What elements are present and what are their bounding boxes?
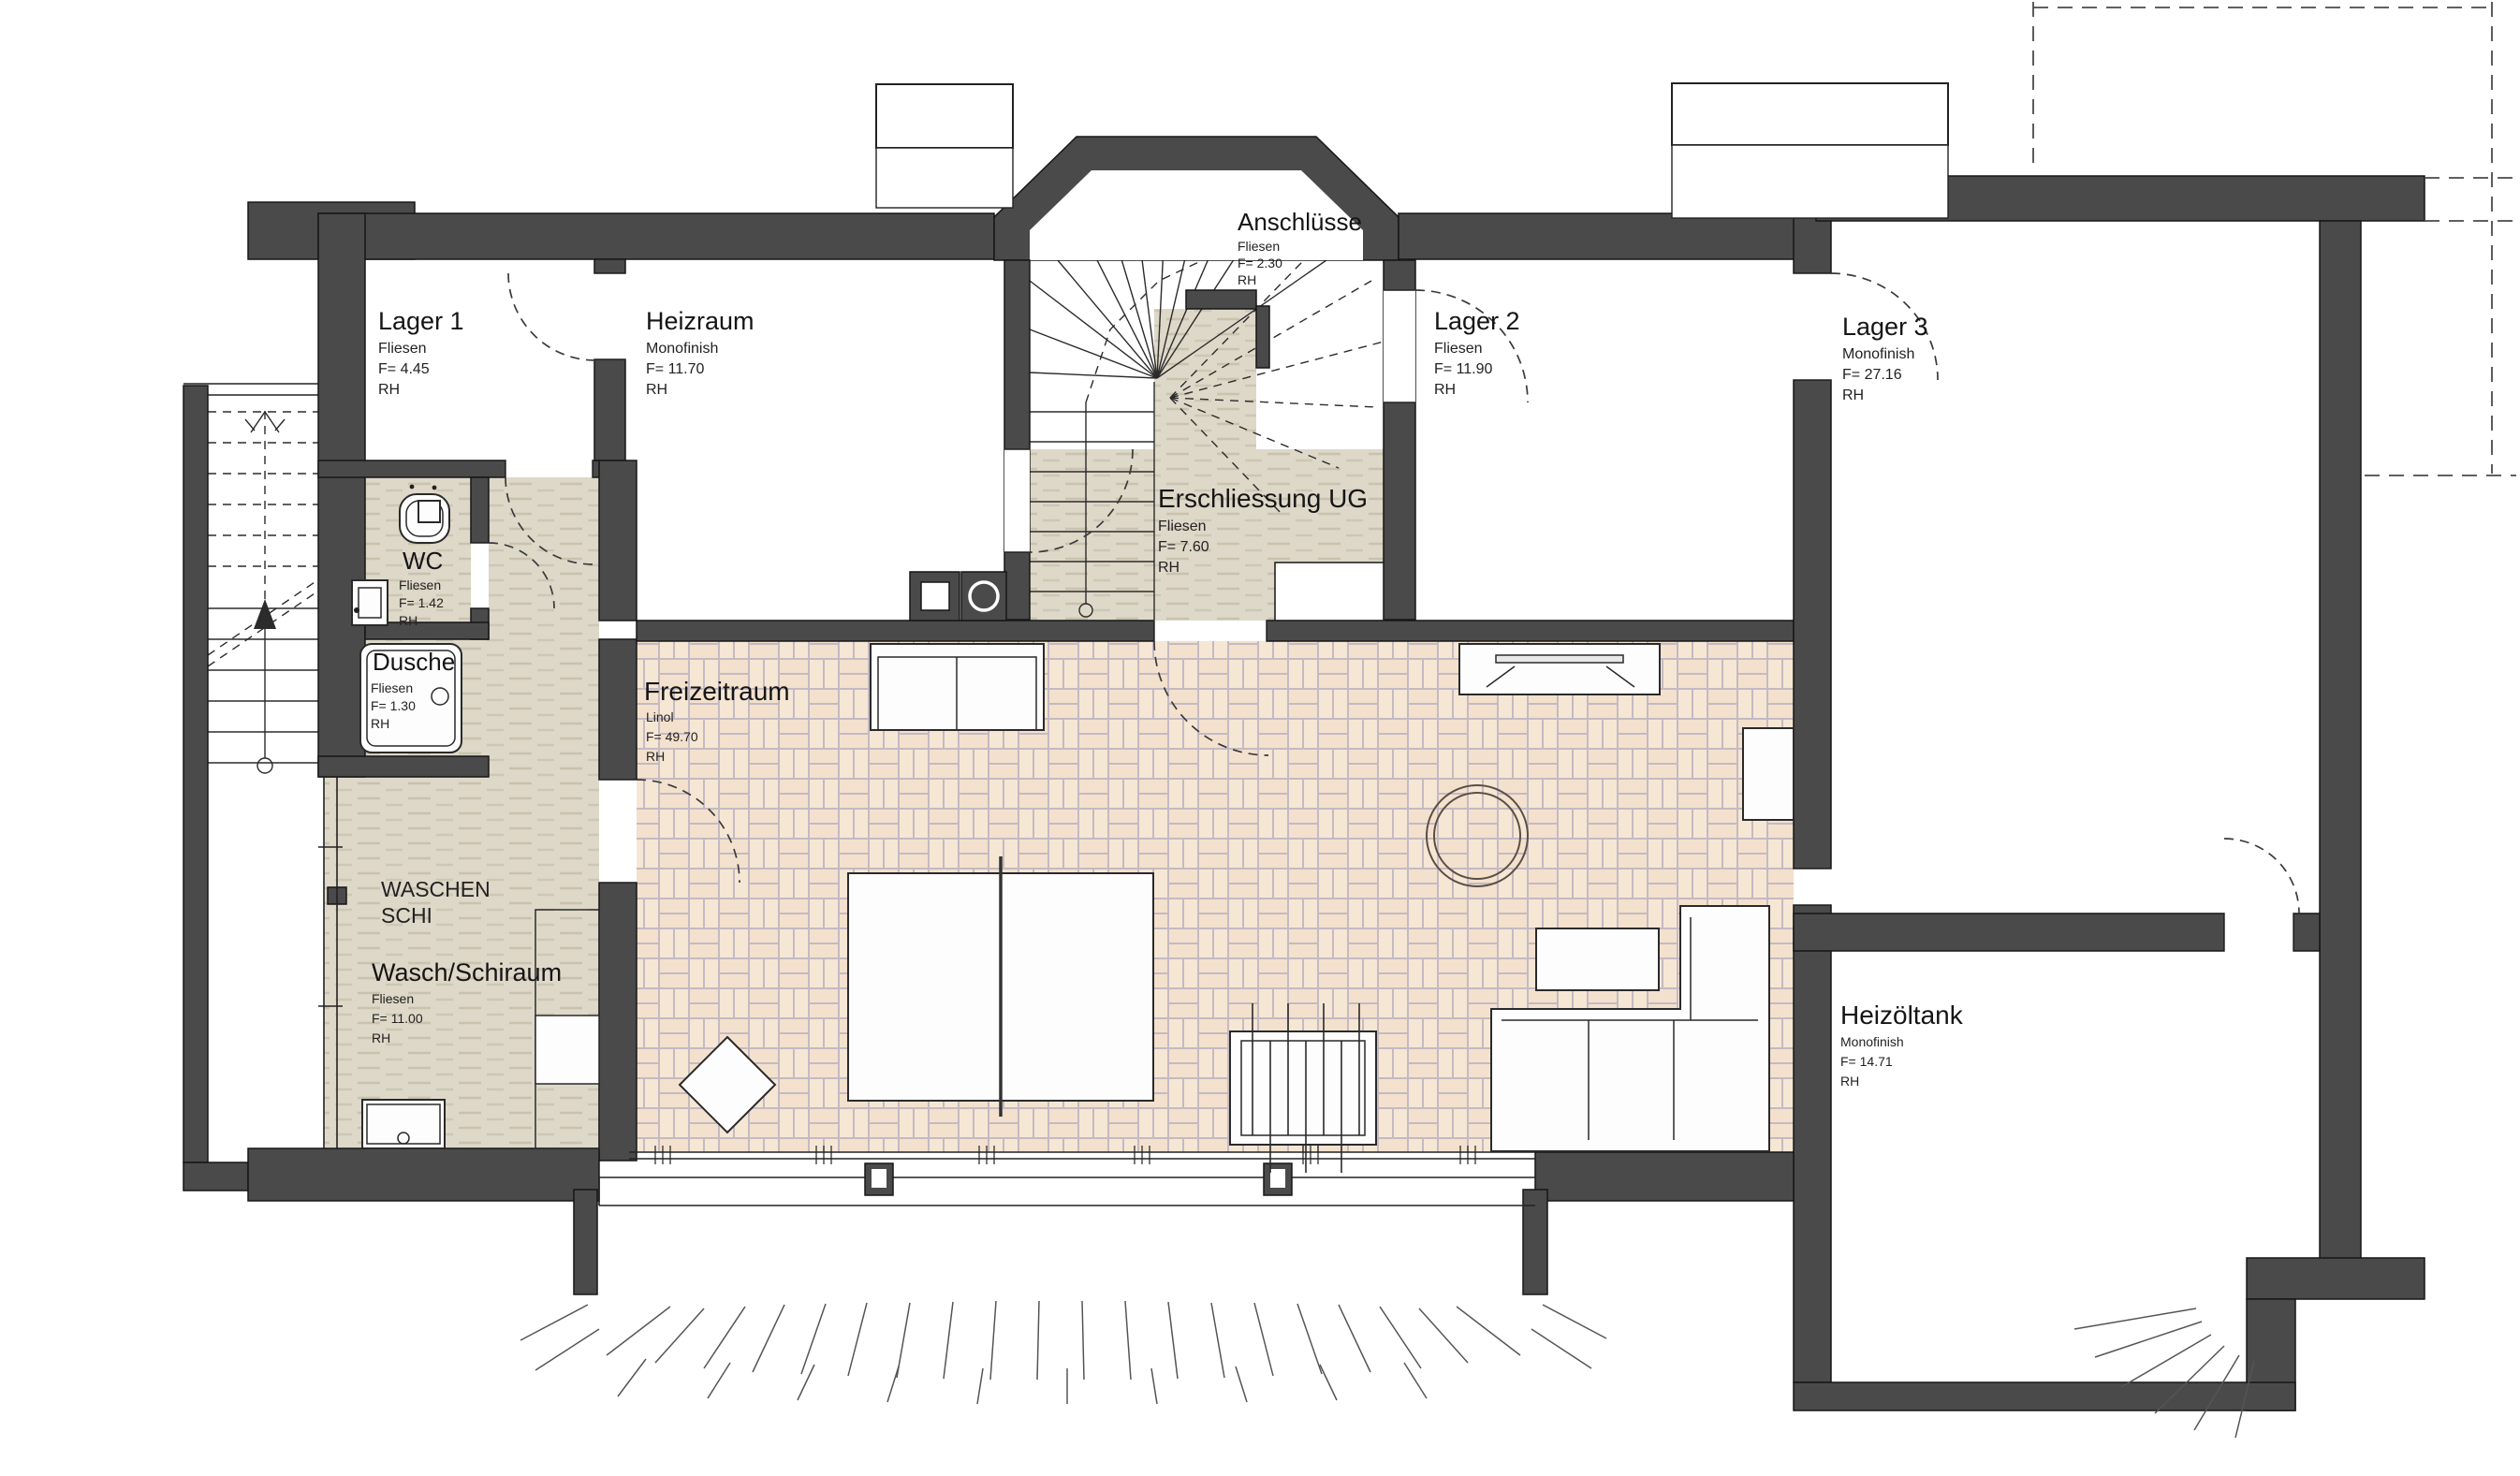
label-lager3: Lager 3 Monofinish F= 27.16 RH xyxy=(1842,313,1928,403)
door-arc-lager1-heizraum xyxy=(508,273,595,360)
terrace-stub-left xyxy=(574,1190,597,1294)
svg-text:RH: RH xyxy=(1158,560,1179,576)
wall-stair-tongue-h xyxy=(1186,290,1256,309)
svg-text:Heizöltank: Heizöltank xyxy=(1840,1001,1964,1030)
ersch-niche xyxy=(1275,563,1384,621)
svg-text:Fliesen: Fliesen xyxy=(1238,239,1280,254)
wall-lager3-bottom-l xyxy=(1794,913,2224,951)
svg-text:RH: RH xyxy=(378,382,400,398)
wall-l2-l3-low xyxy=(1794,905,1831,1382)
window-top-left-shaft xyxy=(876,148,1013,208)
door-arc-lager3-heiz xyxy=(2224,839,2299,913)
svg-text:Heizraum: Heizraum xyxy=(646,307,755,335)
projection-lines xyxy=(2033,2,2516,475)
svg-text:Wasch/Schiraum: Wasch/Schiraum xyxy=(372,958,562,986)
svg-text:Monofinish: Monofinish xyxy=(646,341,718,357)
svg-text:RH: RH xyxy=(1840,1074,1859,1089)
wall-stair-tongue-v xyxy=(1256,306,1269,368)
chimney-flue-round xyxy=(970,582,998,610)
window-top-right-shaft xyxy=(1672,145,1948,218)
svg-text:F= 11.00: F= 11.00 xyxy=(372,1011,423,1026)
wall-cabinet xyxy=(1743,728,1794,820)
window-front-south xyxy=(599,1146,1535,1206)
svg-text:Lager 3: Lager 3 xyxy=(1842,313,1928,341)
svg-text:RH: RH xyxy=(646,382,667,398)
svg-text:Erschliessung UG: Erschliessung UG xyxy=(1158,484,1368,513)
coffee-table xyxy=(1536,928,1659,990)
wall-top-mid xyxy=(1399,213,1816,259)
wall-heiz-step-h xyxy=(2247,1258,2425,1299)
svg-text:RH: RH xyxy=(399,613,418,628)
svg-text:Linol: Linol xyxy=(646,709,674,724)
tv-sideboard xyxy=(1459,644,1660,694)
label-heizraum: Heizraum Monofinish F= 11.70 RH xyxy=(646,307,755,398)
svg-text:Fliesen: Fliesen xyxy=(1434,341,1483,357)
svg-text:RH: RH xyxy=(646,749,665,764)
chimney-flue-square xyxy=(921,582,949,610)
wall-lager3-bottom-r xyxy=(2293,913,2320,951)
svg-text:Fliesen: Fliesen xyxy=(372,991,414,1006)
svg-text:Monofinish: Monofinish xyxy=(1840,1034,1904,1049)
svg-text:Freizeitraum: Freizeitraum xyxy=(644,677,790,706)
wall-wc-right-a xyxy=(471,477,489,543)
svg-text:F= 7.60: F= 7.60 xyxy=(1158,539,1209,555)
svg-text:F= 1.42: F= 1.42 xyxy=(399,595,444,610)
svg-text:Anschlüsse: Anschlüsse xyxy=(1238,208,1362,236)
svg-text:RH: RH xyxy=(372,1030,390,1045)
svg-text:F= 11.90: F= 11.90 xyxy=(1434,361,1493,377)
wall-top-left xyxy=(318,213,994,259)
svg-text:Fliesen: Fliesen xyxy=(371,680,413,695)
wall-wasch-bottom xyxy=(248,1148,599,1201)
wall-lager1-heizraum-b xyxy=(594,359,625,460)
svg-text:Lager 2: Lager 2 xyxy=(1434,307,1520,335)
svg-text:Lager 1: Lager 1 xyxy=(378,307,464,335)
floorplan-basement: Lager 1 Fliesen F= 4.45 RH Heizraum Mono… xyxy=(0,0,2520,1476)
wall-corridor-heizraum xyxy=(599,460,637,621)
wall-corner-sw xyxy=(183,1162,248,1191)
svg-text:Monofinish: Monofinish xyxy=(1842,346,1914,362)
svg-text:F= 4.45: F= 4.45 xyxy=(378,361,430,377)
svg-text:F= 1.30: F= 1.30 xyxy=(371,698,416,713)
svg-text:RH: RH xyxy=(1434,382,1456,398)
sofa-two-seat xyxy=(871,644,1044,730)
svg-text:Fliesen: Fliesen xyxy=(378,341,427,357)
wall-freizeit-bottom-solid xyxy=(1535,1152,1794,1201)
wall-stair-outer xyxy=(183,386,208,1162)
wall-wasch-freizeit-b xyxy=(599,883,637,1161)
svg-text:F= 27.16: F= 27.16 xyxy=(1842,367,1902,383)
svg-text:WC: WC xyxy=(403,547,443,575)
wall-lager1-bottom-l xyxy=(318,460,505,477)
wall-dusche-bottom xyxy=(318,756,489,777)
wall-freizeit-top-left xyxy=(637,621,1154,641)
svg-text:WASCHEN: WASCHEN xyxy=(381,877,491,901)
svg-text:Dusche: Dusche xyxy=(373,648,455,676)
svg-text:F= 14.71: F= 14.71 xyxy=(1840,1054,1893,1069)
label-lager2: Lager 2 Fliesen F= 11.90 RH xyxy=(1434,307,1520,398)
window-top-left xyxy=(876,84,1013,148)
wall-l2-l3-mid xyxy=(1794,380,1831,869)
svg-text:Fliesen: Fliesen xyxy=(1158,519,1207,534)
wall-left-main xyxy=(318,213,365,777)
wall-wasch-freizeit-a xyxy=(599,639,637,780)
ping-pong-table xyxy=(848,856,1153,1117)
svg-text:RH: RH xyxy=(371,716,389,731)
washing-machine xyxy=(362,1100,445,1148)
window-top-right xyxy=(1672,83,1948,145)
wardrobe-white-section xyxy=(535,1016,599,1084)
wall-lager1-heizraum-a xyxy=(594,259,625,273)
terrace-hatch xyxy=(520,1301,2254,1438)
svg-text:F= 11.70: F= 11.70 xyxy=(646,361,705,377)
svg-text:F= 2.30: F= 2.30 xyxy=(1238,256,1282,270)
wc-sink xyxy=(352,580,388,625)
svg-text:RH: RH xyxy=(1238,272,1256,287)
wall-right xyxy=(2320,221,2361,1273)
wall-freizeit-top-right xyxy=(1267,621,1794,641)
wall-stair-left xyxy=(1004,260,1030,620)
label-heizoeltank: Heizöltank Monofinish F= 14.71 RH xyxy=(1840,1001,1964,1089)
svg-text:RH: RH xyxy=(1842,387,1864,403)
stair-direction-arrow xyxy=(254,599,276,629)
svg-text:Fliesen: Fliesen xyxy=(399,577,441,592)
svg-text:F= 49.70: F= 49.70 xyxy=(646,729,698,744)
svg-text:SCHI: SCHI xyxy=(381,903,432,928)
label-lager1: Lager 1 Fliesen F= 4.45 RH xyxy=(378,307,464,398)
